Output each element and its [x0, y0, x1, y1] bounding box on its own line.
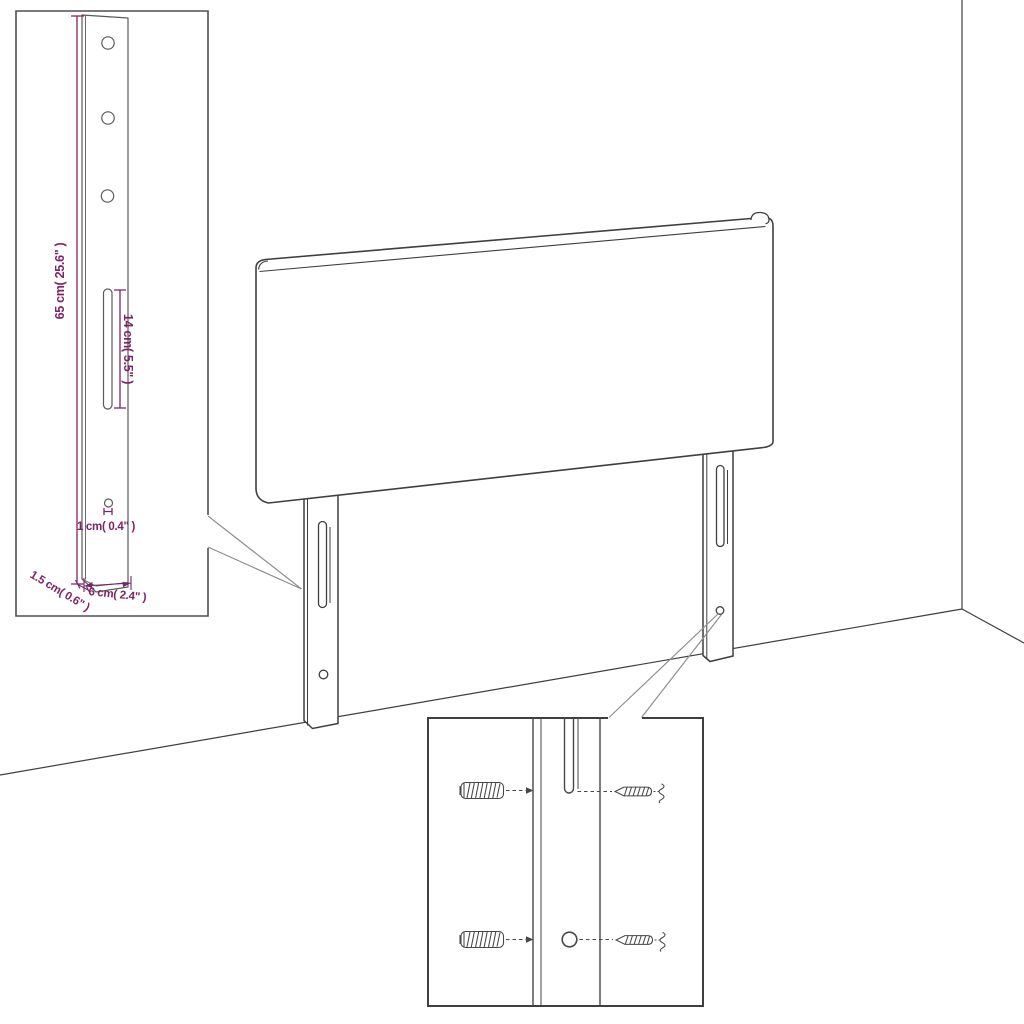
panel-outline: [256, 217, 773, 503]
bracket-hole-top: [102, 37, 114, 49]
bracket-drawing: [82, 15, 128, 592]
left-leg-slot: [319, 522, 327, 608]
label-bracket-hole: 1 cm( 0.4" ): [77, 521, 136, 533]
left-leg-hole: [319, 670, 328, 679]
right-leg-slot: [717, 466, 725, 547]
leader-mounting-left: [609, 613, 719, 718]
diagram-canvas: 65 cm( 25.6" ) 14 cm( 5.5" ) 1 cm( 0.4" …: [0, 0, 1024, 1024]
headboard: [256, 212, 773, 728]
bracket-hole-bottom: [101, 190, 113, 202]
callout-mounting-box: [428, 718, 703, 1006]
headboard-left-leg: [304, 485, 338, 729]
bracket-slot: [104, 289, 113, 409]
callout-bracket-detail: 65 cm( 25.6" ) 14 cm( 5.5" ) 1 cm( 0.4" …: [16, 11, 208, 616]
headboard-right-leg: [703, 444, 733, 662]
headboard-panel: [256, 212, 773, 503]
label-bracket-height: 65 cm( 25.6" ): [53, 242, 67, 319]
right-leg-hole: [716, 607, 724, 615]
callout-leader-lines: [208, 516, 722, 718]
leader-bracket-lower: [208, 547, 302, 589]
bracket-hole-middle: [102, 112, 114, 124]
floor-line-right: [962, 609, 1024, 643]
callout-mounting-detail: [428, 718, 703, 1006]
leader-bracket-upper: [208, 516, 302, 589]
bracket-small-hole: [105, 499, 113, 507]
diagram-page: 65 cm( 25.6" ) 14 cm( 5.5" ) 1 cm( 0.4" …: [0, 0, 1024, 1024]
label-bracket-slot: 14 cm( 5.5" ): [121, 314, 135, 384]
leader-mounting-right: [642, 615, 722, 718]
